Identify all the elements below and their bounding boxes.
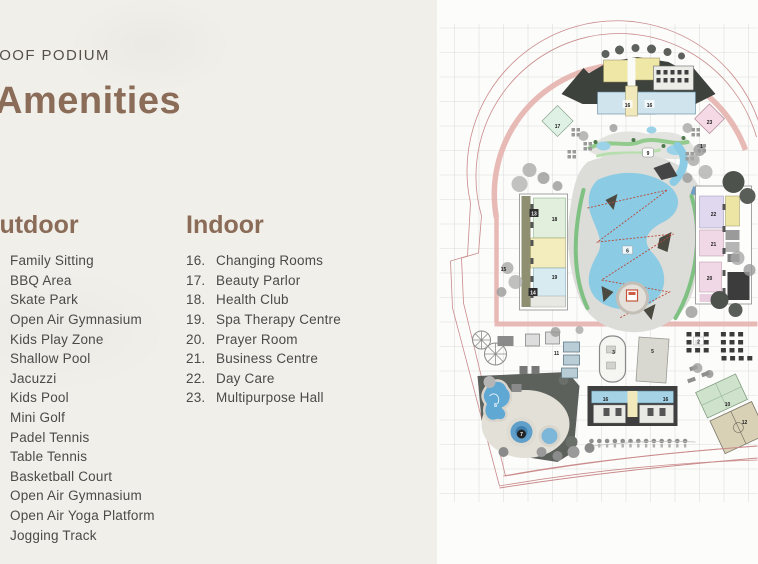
outdoor-item: Mini Golf [10,408,182,428]
plan-label: 21 [711,242,717,248]
outdoor-item: Kids Play Zone [10,329,182,349]
indoor-item-label: Spa Therapy Centre [216,312,341,327]
bottom-building [588,386,678,426]
plan-label: 3 [612,350,615,356]
outdoor-item: Shallow Pool [10,349,182,369]
plan-label: 6 [626,249,629,255]
indoor-item: 21. Business Centre [186,349,396,369]
page-title: Amenities [0,80,181,123]
skate-track [600,336,626,382]
outdoor-item: Open Air Gymnasium [10,486,182,506]
indoor-item: 16. Changing Rooms [186,251,396,271]
indoor-item-number: 17. [186,273,216,288]
plan-label: 8 [494,403,497,409]
right-building [696,186,752,304]
indoor-item-label: Day Care [216,371,275,386]
plan-label: 16 [663,397,669,403]
plan-label: 17 [555,124,561,130]
plan-label: 14 [530,291,536,297]
plan-label: 19 [552,275,558,281]
indoor-item: 20. Prayer Room [186,329,396,349]
pools-zone [478,366,580,462]
plan-label: 2 [697,340,700,346]
indoor-item-number: 21. [186,351,216,366]
outdoor-heading: Outdoor [0,211,182,239]
indoor-item-number: 18. [186,292,216,307]
indoor-item-label: Beauty Parlor [216,273,300,288]
plan-label: 15 [501,267,507,273]
mini-golf-area [636,337,669,383]
outdoor-item: Table Tennis [10,447,182,467]
plan-label: 12 [742,420,748,426]
indoor-item-label: Health Club [216,292,289,307]
plan-label: 5 [651,349,654,355]
plan-label: 10 [725,402,731,408]
outdoor-list: Family SittingBBQ AreaSkate ParkOpen Air… [0,251,182,545]
eyebrow: ROOF PODIUM [0,47,110,64]
outdoor-item: Padel Tennis [10,427,182,447]
indoor-heading: Indoor [186,211,396,239]
outdoor-column: Outdoor Family SittingBBQ AreaSkate Park… [0,211,182,545]
plan-label: 11 [554,351,560,357]
site-plan-svg: 17 23 16 16 13 18 19 14 22 21 20 6 9 8 7… [437,0,758,564]
outdoor-item: Skate Park [10,290,182,310]
indoor-item: 17. Beauty Parlor [186,271,396,291]
outdoor-item: Jogging Track [10,525,182,545]
plan-label: 1 [700,144,703,150]
plan-label: 7 [520,432,523,438]
outdoor-item: Kids Pool [10,388,182,408]
plan-label: 20 [707,276,713,282]
lounger-row [589,439,687,448]
plan-label: 22 [711,212,717,218]
indoor-item-label: Prayer Room [216,332,298,347]
indoor-item: 18. Health Club [186,290,396,310]
plan-label: 16 [625,103,631,109]
indoor-item-number: 19. [186,312,216,327]
plan-label: 13 [531,212,537,218]
indoor-item-number: 22. [186,371,216,386]
left-building [520,194,568,310]
plan-label: 16 [647,103,653,109]
indoor-list: 16. Changing Rooms 17. Beauty Parlor 18.… [186,251,396,408]
plan-label: 9 [647,151,650,157]
indoor-item: 19. Spa Therapy Centre [186,310,396,330]
indoor-column: Indoor 16. Changing Rooms 17. Beauty Par… [186,211,396,408]
outdoor-item: Open Air Yoga Platform [10,506,182,526]
indoor-item-label: Changing Rooms [216,253,323,268]
pavilion-deck [618,283,648,313]
indoor-item-number: 23. [186,390,216,405]
site-plan: 17 23 16 16 13 18 19 14 22 21 20 6 9 8 7… [437,0,758,564]
outdoor-item: Open Air Gymnasium [10,310,182,330]
indoor-item-label: Business Centre [216,351,318,366]
indoor-item-number: 20. [186,332,216,347]
plan-label: 23 [707,120,713,126]
top-building [562,44,716,116]
outdoor-item: Jacuzzi [10,369,182,389]
brochure-page: ROOF PODIUM Amenities Outdoor Family Sit… [0,0,758,564]
indoor-item-label: Multipurpose Hall [216,390,324,405]
beauty-parlor-diamond [542,105,573,136]
indoor-item: 23. Multipurpose Hall [186,388,396,408]
plan-label: 16 [603,397,609,403]
outdoor-item: BBQ Area [10,271,182,291]
indoor-item: 22. Day Care [186,369,396,389]
outdoor-item: Family Sitting [10,251,182,271]
outdoor-item: Basketball Court [10,467,182,487]
plan-label: 18 [552,217,558,223]
indoor-item-number: 16. [186,253,216,268]
